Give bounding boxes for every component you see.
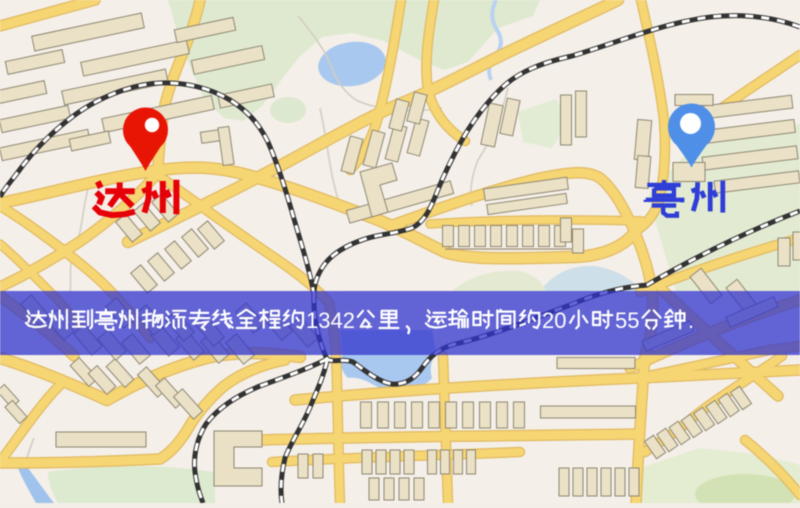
- svg-text:.: .: [688, 308, 694, 333]
- svg-text:55: 55: [615, 308, 639, 333]
- svg-text:20: 20: [542, 308, 566, 333]
- svg-text:1342: 1342: [306, 308, 355, 333]
